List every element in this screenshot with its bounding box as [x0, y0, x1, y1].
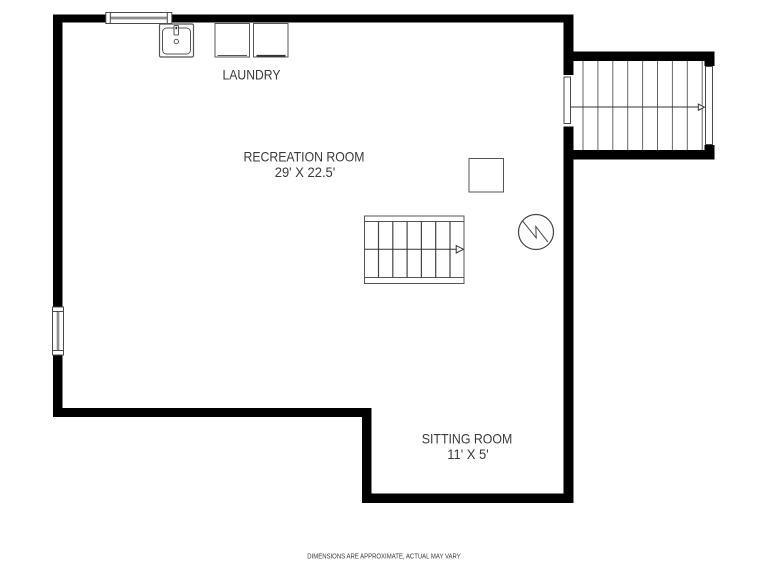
svg-text:29' X 22.5': 29' X 22.5' — [275, 164, 336, 180]
svg-text:DIMENSIONS ARE APPROXIMATE, AC: DIMENSIONS ARE APPROXIMATE, ACTUAL MAY V… — [307, 554, 461, 561]
svg-text:SITTING ROOM: SITTING ROOM — [422, 431, 513, 447]
svg-text:RECREATION ROOM: RECREATION ROOM — [244, 149, 365, 165]
svg-text:11' X 5': 11' X 5' — [447, 446, 489, 462]
svg-text:LAUNDRY: LAUNDRY — [223, 67, 282, 83]
